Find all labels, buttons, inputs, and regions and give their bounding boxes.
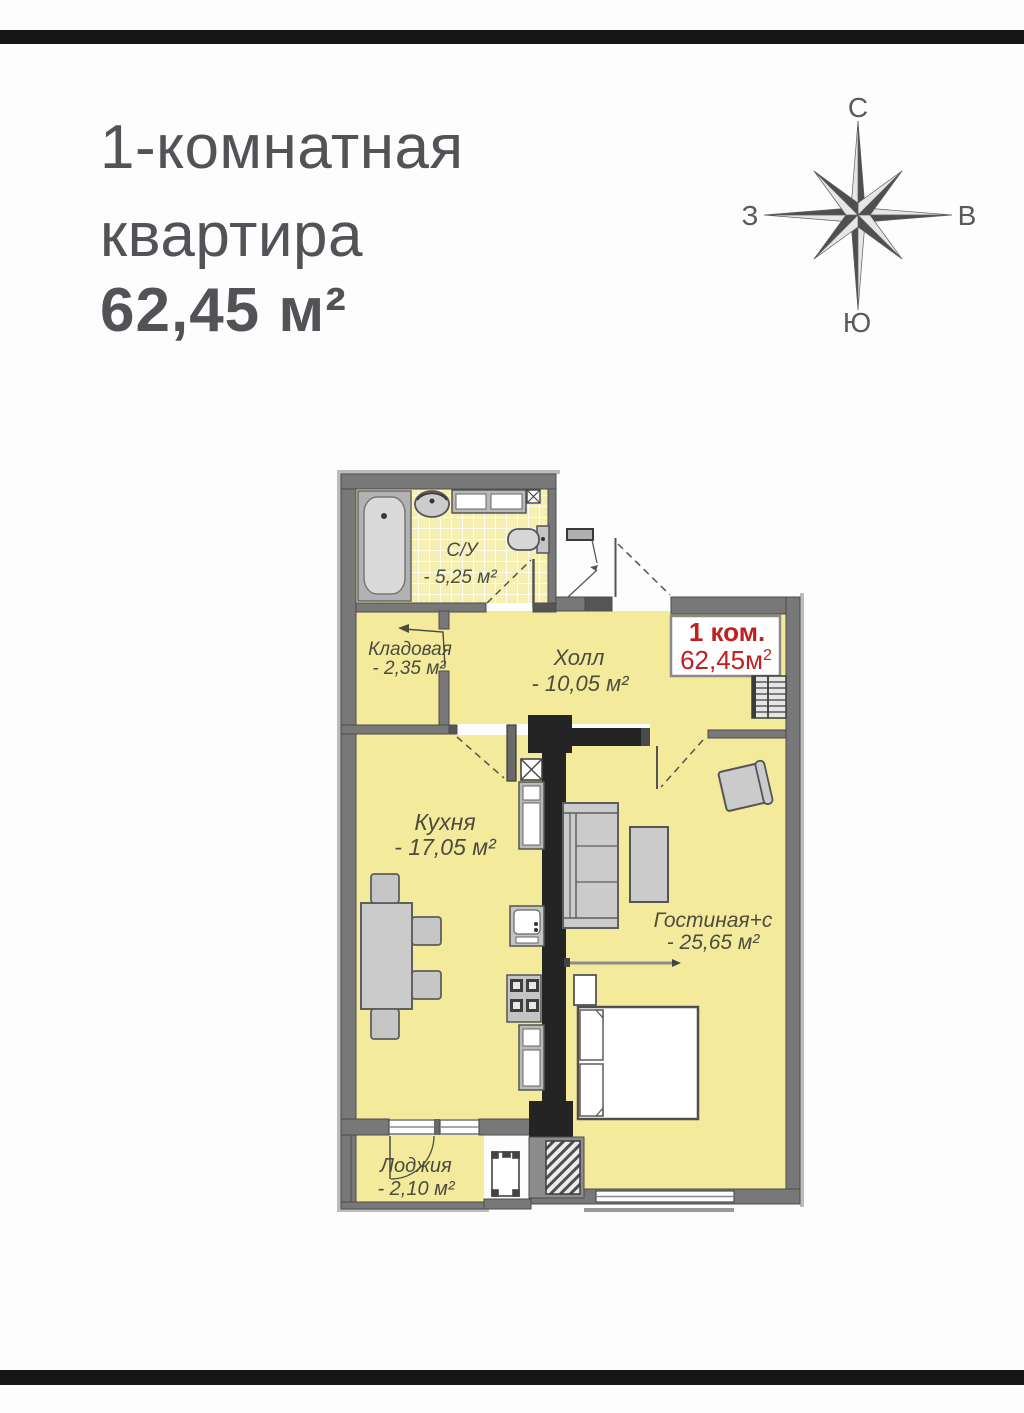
svg-text:1 ком.: 1 ком. (689, 617, 765, 647)
svg-text:С/У: С/У (446, 540, 479, 561)
svg-text:- 10,05 м²: - 10,05 м² (531, 671, 629, 696)
svg-text:- 25,65 м²: - 25,65 м² (667, 931, 761, 954)
svg-text:- 17,05 м²: - 17,05 м² (394, 834, 497, 860)
svg-text:Гостиная+с: Гостиная+с (654, 909, 773, 932)
svg-text:Холл: Холл (553, 645, 605, 670)
svg-text:Кладовая: Кладовая (368, 639, 452, 660)
svg-text:- 5,25 м²: - 5,25 м² (423, 567, 497, 588)
svg-text:- 2,10 м²: - 2,10 м² (377, 1178, 455, 1200)
svg-text:62,45м2: 62,45м2 (680, 645, 772, 675)
svg-text:Кухня: Кухня (414, 809, 475, 835)
svg-text:Лоджия: Лоджия (378, 1155, 452, 1177)
svg-text:- 2,35 м²: - 2,35 м² (372, 658, 446, 679)
